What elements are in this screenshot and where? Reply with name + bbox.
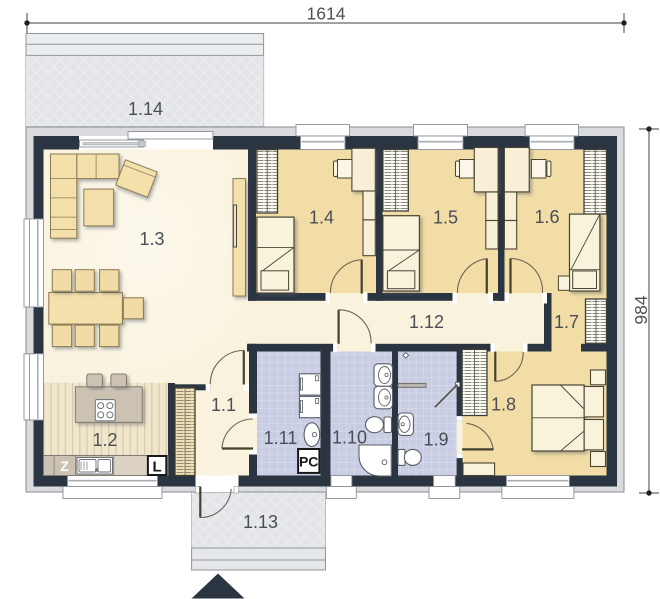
svg-text:1.14: 1.14 bbox=[128, 99, 163, 119]
svg-text:1.2: 1.2 bbox=[92, 430, 117, 450]
svg-text:Z: Z bbox=[60, 458, 69, 474]
svg-text:1.4: 1.4 bbox=[309, 208, 334, 228]
svg-text:1.13: 1.13 bbox=[243, 512, 278, 532]
svg-text:1.11: 1.11 bbox=[264, 428, 298, 448]
svg-text:1614: 1614 bbox=[307, 4, 346, 24]
svg-text:1.6: 1.6 bbox=[534, 207, 559, 227]
svg-text:1.12: 1.12 bbox=[409, 312, 444, 332]
svg-text:L: L bbox=[153, 459, 162, 476]
svg-text:1.3: 1.3 bbox=[139, 229, 164, 249]
svg-text:984: 984 bbox=[631, 295, 651, 324]
svg-text:1.8: 1.8 bbox=[491, 395, 516, 415]
svg-text:1.9: 1.9 bbox=[423, 430, 448, 450]
svg-text:PC: PC bbox=[299, 454, 318, 470]
svg-text:1.5: 1.5 bbox=[433, 208, 458, 228]
svg-text:1.10: 1.10 bbox=[332, 428, 367, 448]
svg-text:1.7: 1.7 bbox=[554, 312, 579, 332]
svg-text:1.1: 1.1 bbox=[211, 395, 236, 415]
